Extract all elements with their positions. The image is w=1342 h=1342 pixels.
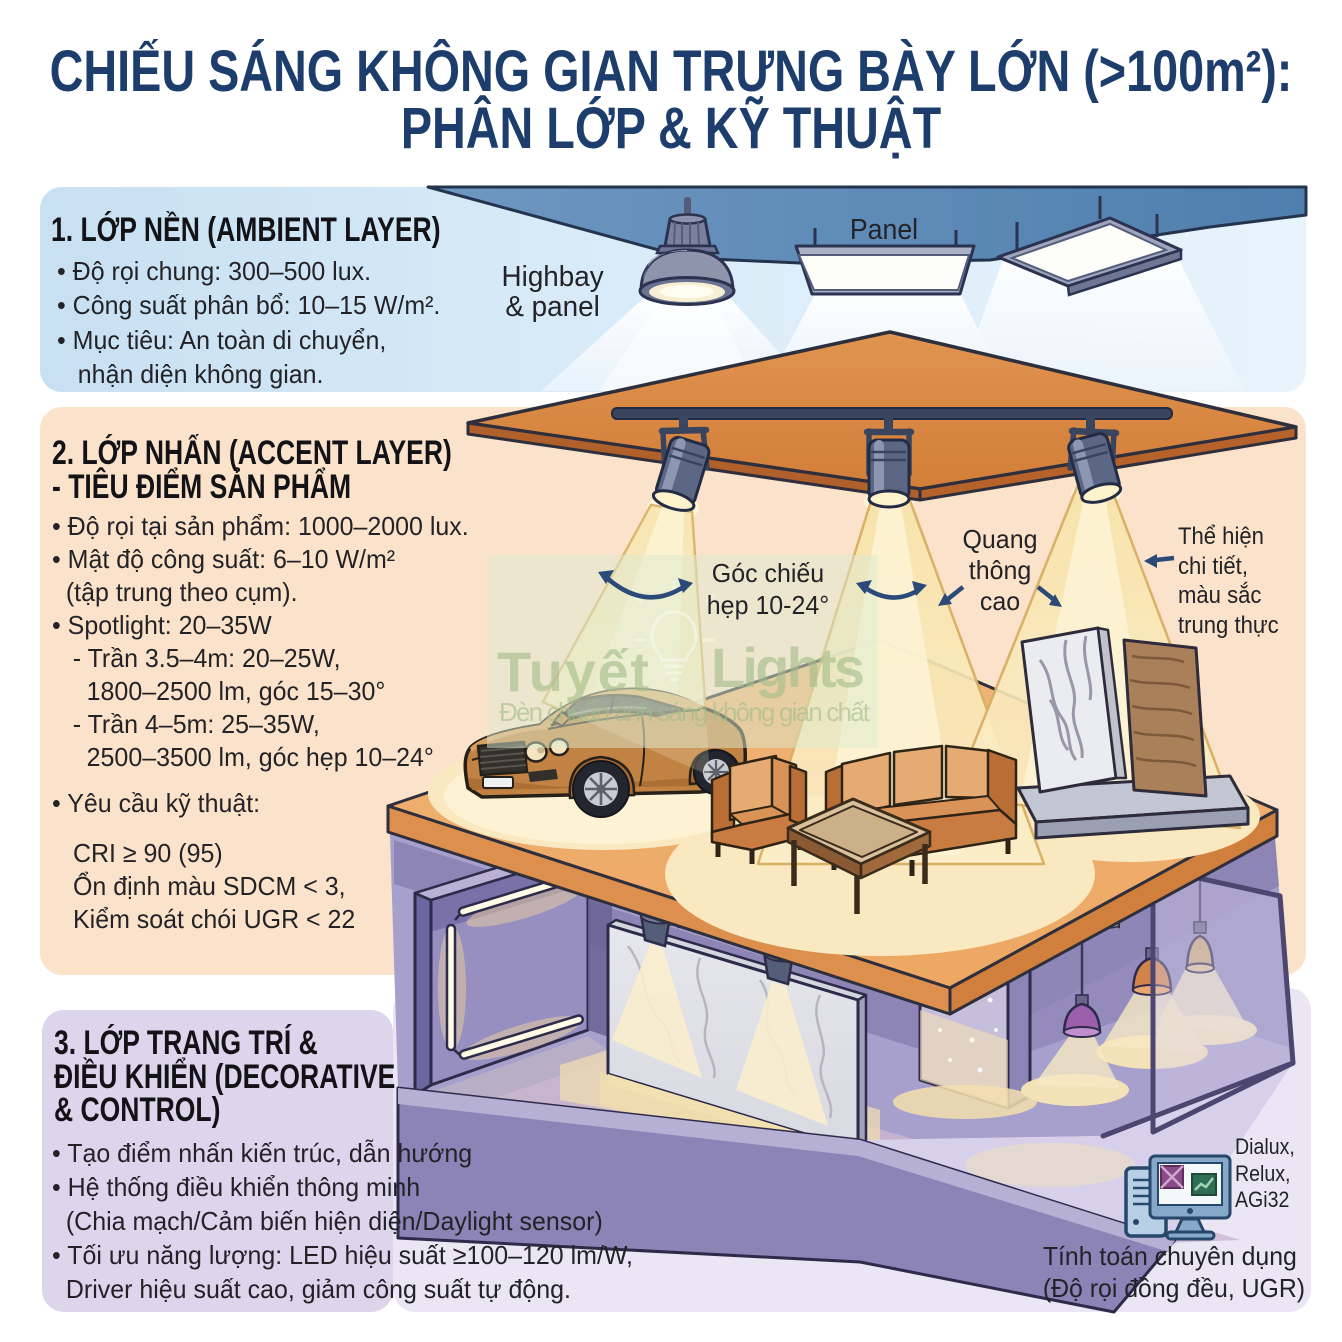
- svg-text:Tuyết: Tuyết: [497, 640, 649, 703]
- svg-text:Lights: Lights: [711, 636, 865, 699]
- svg-text:Đèn chuẩn ánh sáng không gian: Đèn chuẩn ánh sáng không gian chất: [499, 697, 871, 727]
